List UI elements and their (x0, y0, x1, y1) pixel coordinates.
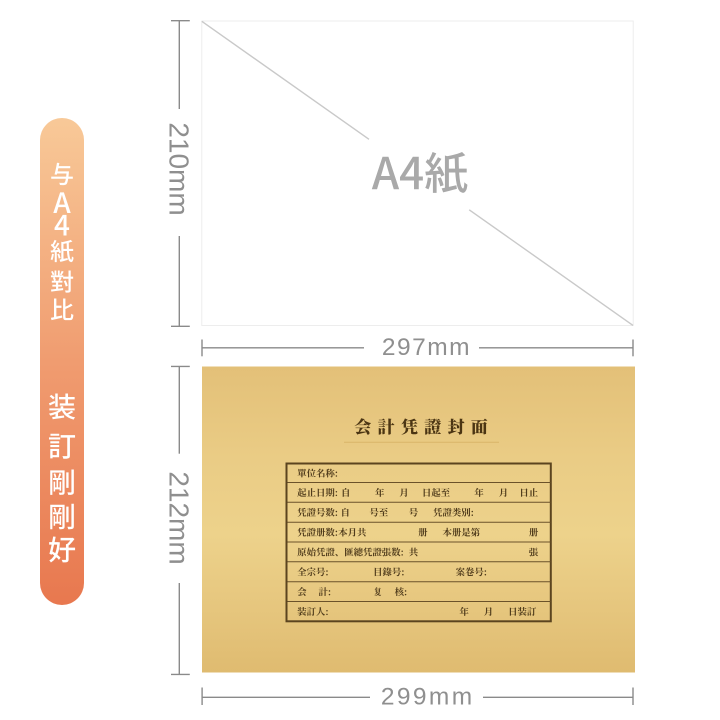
svg-text:212mm: 212mm (163, 471, 194, 564)
svg-text:299mm: 299mm (381, 683, 475, 710)
svg-text:210mm: 210mm (163, 122, 194, 215)
svg-text:297mm: 297mm (382, 334, 471, 361)
